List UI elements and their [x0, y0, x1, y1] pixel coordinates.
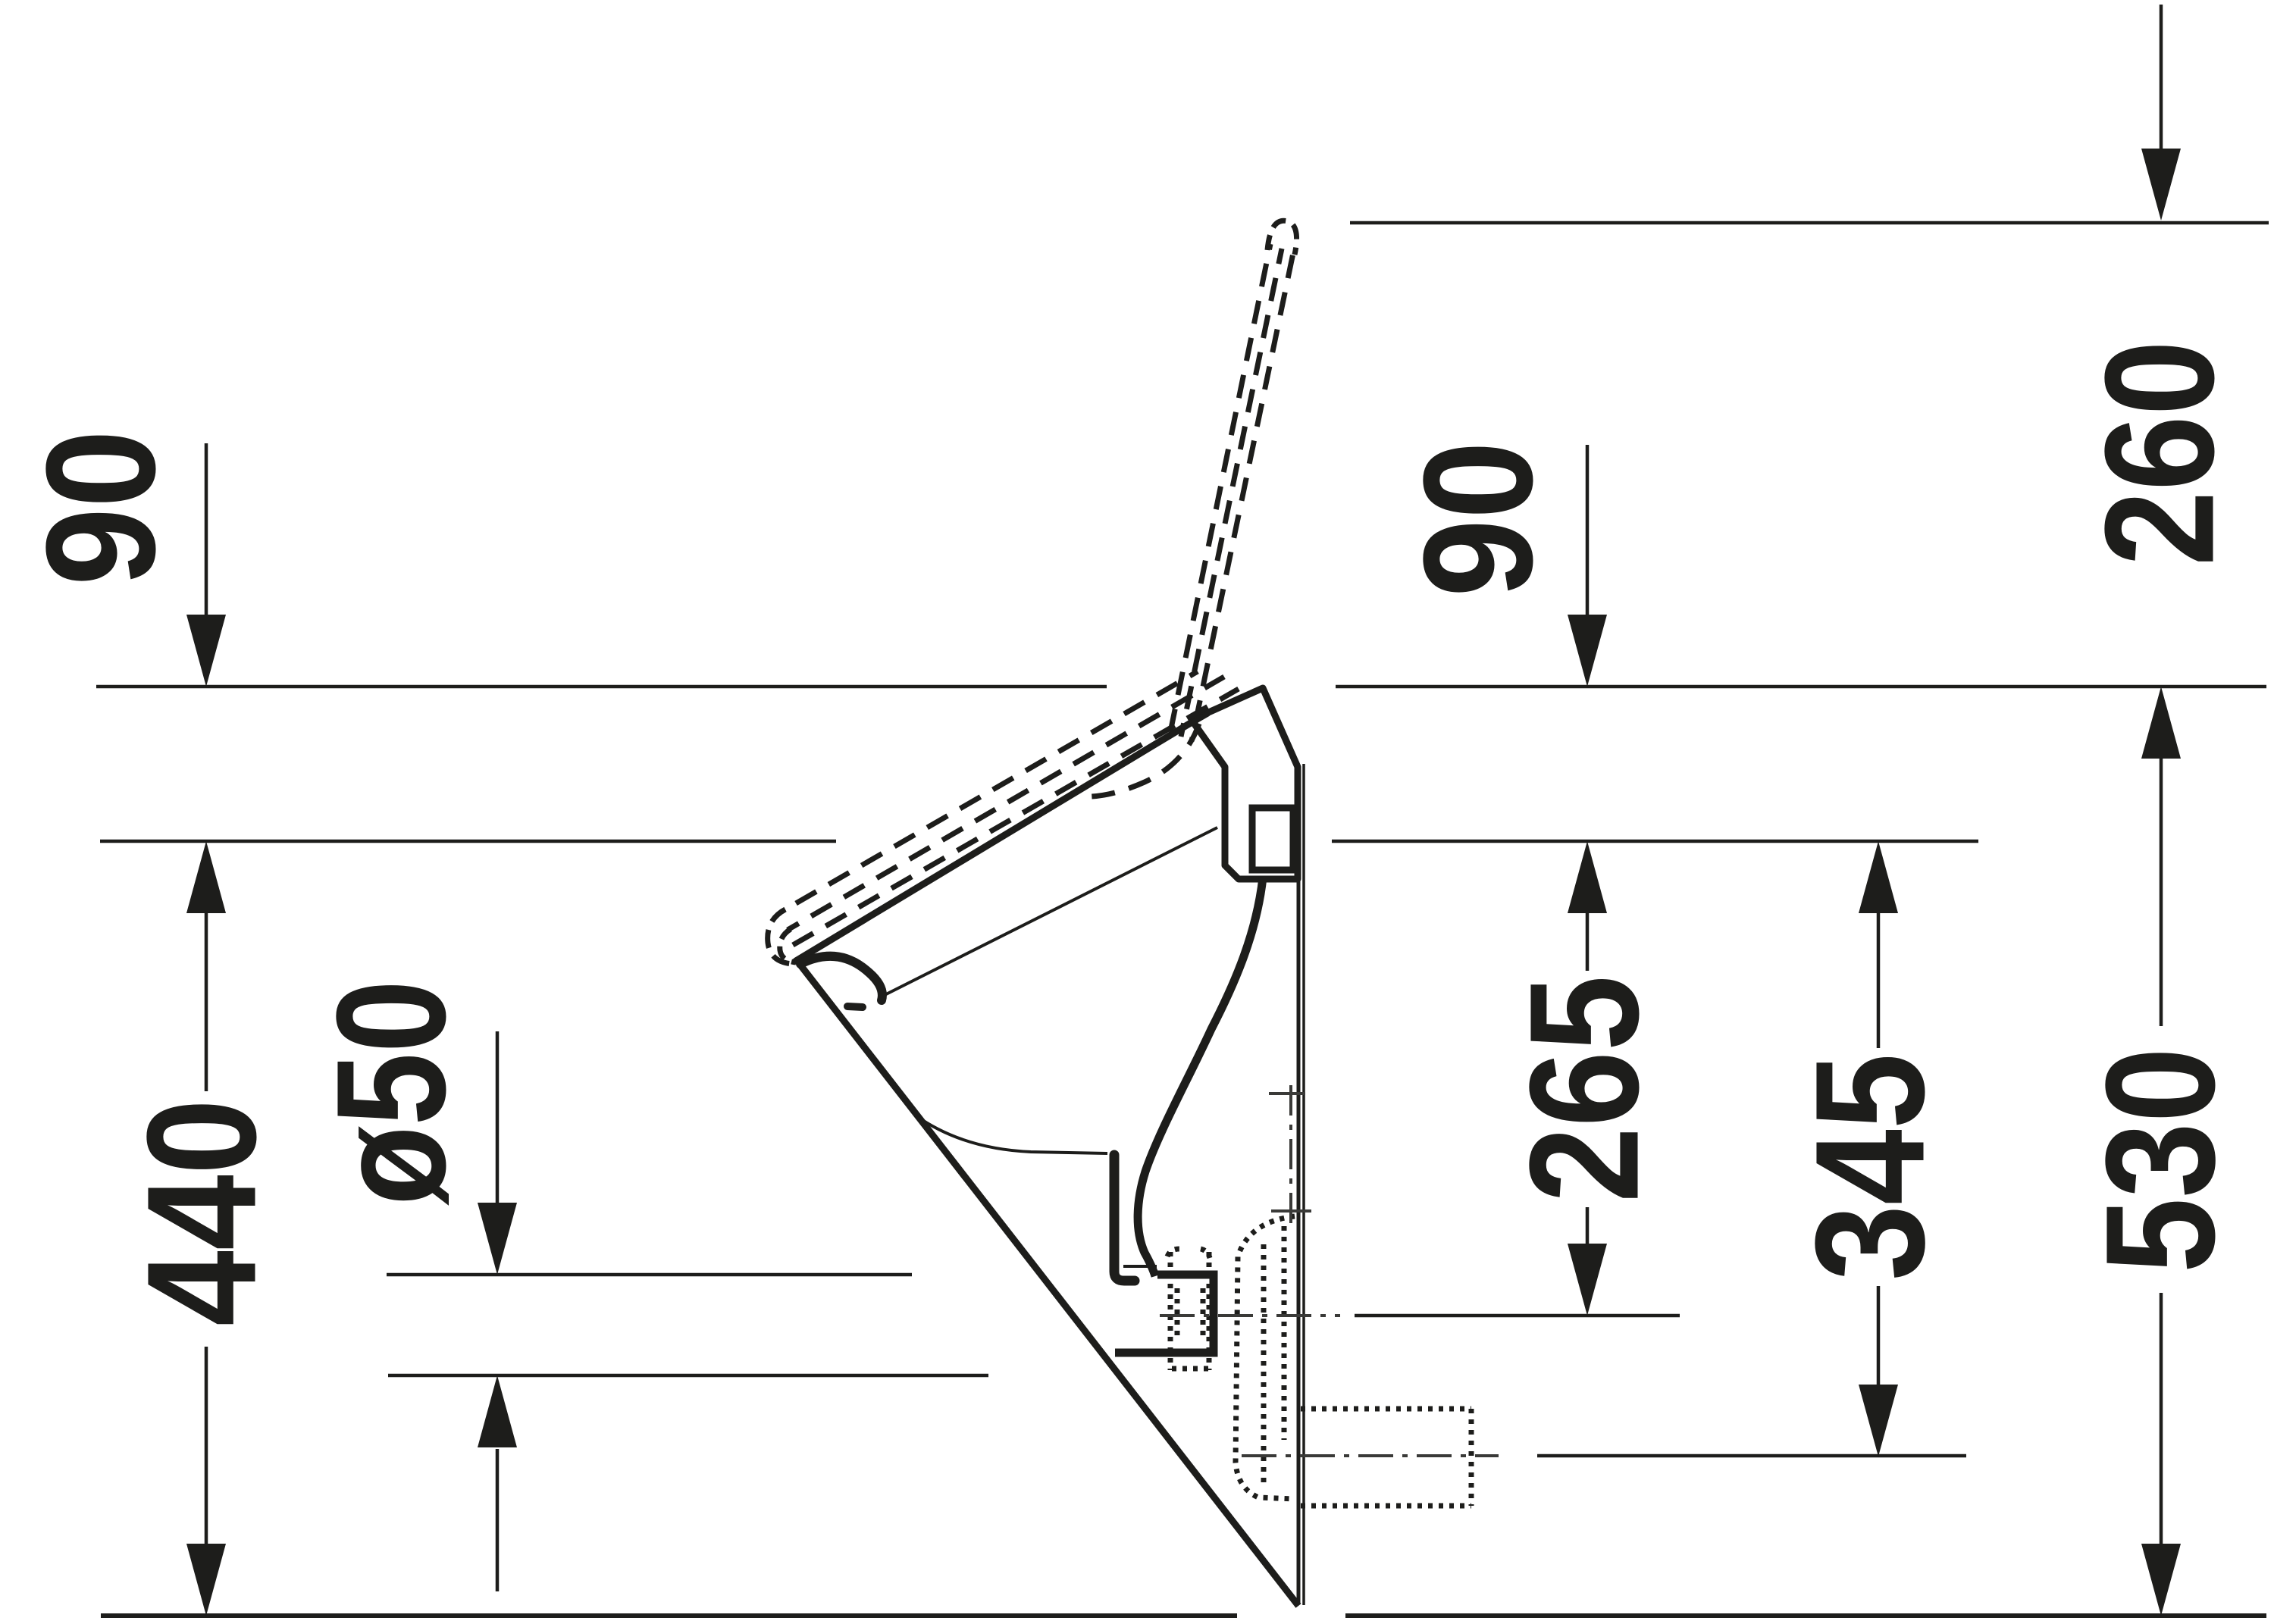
svg-text:90: 90 [1392, 441, 1565, 597]
svg-text:530: 530 [2074, 1047, 2247, 1273]
svg-text:90: 90 [14, 430, 188, 586]
svg-text:ø50: ø50 [305, 980, 478, 1206]
svg-text:345: 345 [1784, 1053, 1957, 1281]
svg-text:260: 260 [2073, 340, 2247, 566]
svg-text:440: 440 [115, 1099, 289, 1326]
svg-text:265: 265 [1498, 975, 1671, 1203]
